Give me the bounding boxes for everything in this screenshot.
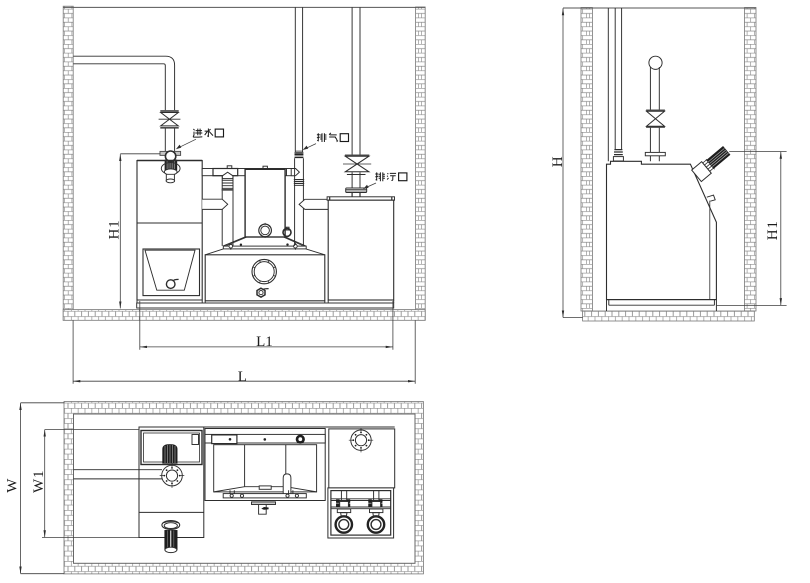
svg-text:H1: H1 — [765, 220, 781, 240]
svg-text:W: W — [4, 478, 20, 493]
svg-text:H1: H1 — [107, 220, 123, 240]
svg-text:W1: W1 — [31, 470, 47, 493]
svg-text:H: H — [550, 156, 566, 167]
svg-text:L: L — [238, 369, 247, 385]
svg-text:L1: L1 — [256, 334, 273, 350]
